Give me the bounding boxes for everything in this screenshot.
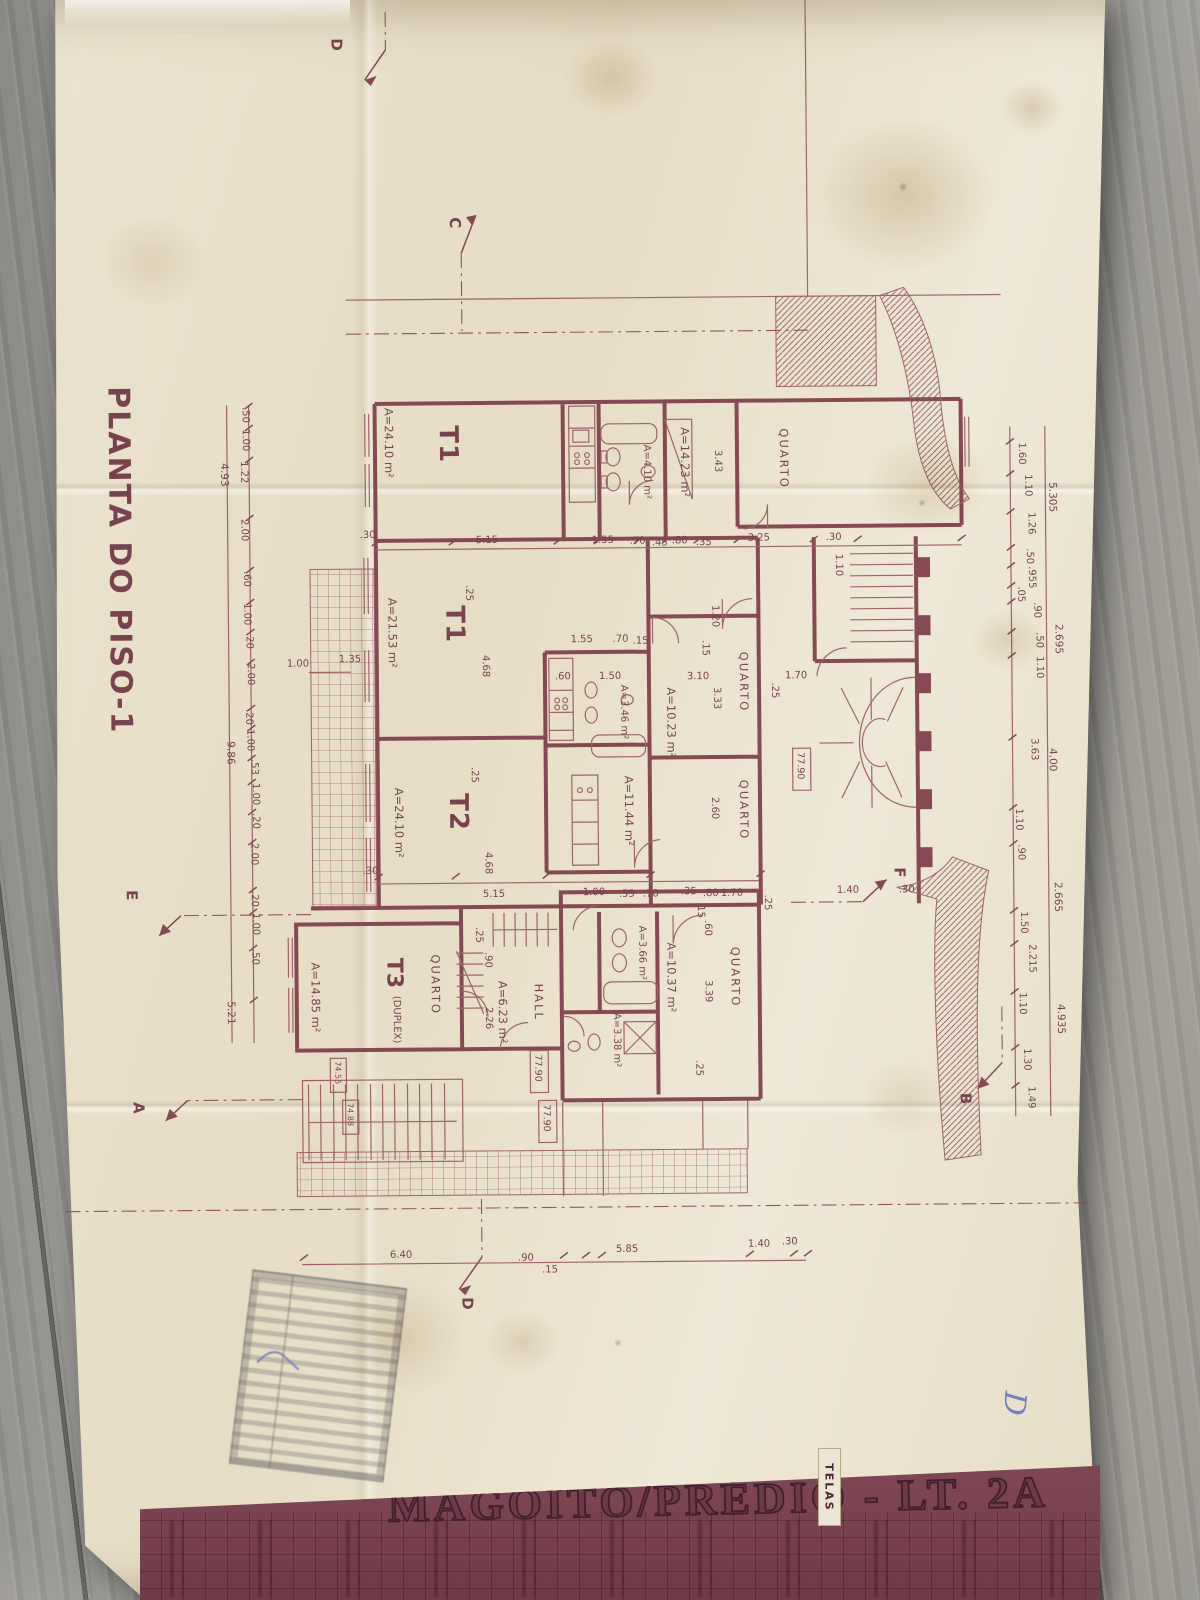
section-letter-b: B bbox=[957, 1093, 975, 1105]
svg-text:1.10: 1.10 bbox=[1013, 808, 1024, 830]
room-hall: HALL bbox=[532, 983, 546, 1020]
unit-area-t1-top: A=24.10 m² bbox=[382, 408, 397, 478]
unit-label-t1-mid: T1 bbox=[439, 605, 469, 643]
svg-text:.25: .25 bbox=[463, 585, 474, 601]
handwritten-d-mark: D bbox=[996, 1390, 1033, 1417]
svg-text:1.35: 1.35 bbox=[339, 654, 361, 665]
bottom-grid-hatch bbox=[297, 1149, 747, 1197]
room-quarto-3: QUARTO bbox=[737, 780, 752, 841]
area-bath-mid: A=3.46 m² bbox=[618, 685, 629, 740]
svg-text:1.70: 1.70 bbox=[721, 888, 743, 899]
bathtub-3 bbox=[604, 982, 658, 1004]
room-quarto-1: QUARTO bbox=[777, 428, 792, 489]
svg-text:.53: .53 bbox=[249, 759, 260, 775]
svg-text:.30: .30 bbox=[360, 530, 376, 541]
svg-text:1.55: 1.55 bbox=[571, 634, 593, 645]
svg-text:.35: .35 bbox=[681, 886, 697, 897]
svg-text:1.20: 1.20 bbox=[709, 605, 720, 627]
svg-text:2.60: 2.60 bbox=[709, 797, 720, 819]
svg-text:1.00: 1.00 bbox=[250, 913, 261, 935]
door-arcs bbox=[457, 479, 850, 1049]
area-bed-t3: A=10.37 m² bbox=[664, 942, 679, 1012]
svg-text:.60: .60 bbox=[555, 671, 571, 682]
kitchen-counter bbox=[569, 406, 596, 502]
svg-text:2.00: 2.00 bbox=[248, 843, 259, 865]
section-letter-c: C bbox=[446, 217, 464, 228]
section-letter-f: F bbox=[891, 867, 909, 877]
kitchen-sink bbox=[573, 430, 589, 442]
svg-text:1.50: 1.50 bbox=[599, 671, 621, 682]
svg-text:1.50: 1.50 bbox=[1018, 911, 1029, 933]
t3-dimension-row: .25 .90 2.26 bbox=[473, 927, 494, 1029]
washbasin-2 bbox=[568, 1041, 580, 1051]
survey-lines bbox=[343, 0, 1001, 300]
svg-text:1.00: 1.00 bbox=[240, 429, 251, 451]
svg-text:3.33: 3.33 bbox=[711, 687, 722, 709]
bathtub bbox=[601, 423, 657, 443]
svg-text:2.665: 2.665 bbox=[1052, 882, 1064, 912]
svg-text:4.00: 4.00 bbox=[1047, 748, 1059, 771]
svg-text:4.68: 4.68 bbox=[482, 852, 493, 874]
unit-label-t1-top: T1 bbox=[433, 425, 463, 463]
svg-text:1.00: 1.00 bbox=[250, 783, 261, 805]
svg-text:3.25: 3.25 bbox=[748, 533, 770, 544]
svg-text:2.215: 2.215 bbox=[1026, 944, 1037, 973]
svg-text:.55: .55 bbox=[619, 889, 635, 900]
svg-text:.25: .25 bbox=[762, 894, 773, 910]
area-bed-mid: A=10.23 m² bbox=[664, 687, 679, 757]
svg-text:1.00: 1.00 bbox=[583, 887, 605, 898]
bidet bbox=[612, 954, 626, 972]
unit-area-t1-mid: A=21.53 m² bbox=[385, 598, 400, 668]
svg-text:6.40: 6.40 bbox=[390, 1250, 412, 1261]
svg-text:.15: .15 bbox=[633, 636, 649, 647]
svg-text:.30: .30 bbox=[826, 532, 842, 543]
svg-text:1.40: 1.40 bbox=[748, 1239, 770, 1250]
bottom-dimension-chain: 6.40 .90 .15 5.85 1.40 .30 bbox=[390, 1236, 798, 1277]
t2-dimension-row: .30 .25 4.68 5.15 bbox=[362, 767, 505, 901]
svg-text:1.10: 1.10 bbox=[1022, 474, 1033, 496]
bidet bbox=[585, 707, 597, 723]
curved-stair-inner bbox=[862, 719, 886, 767]
svg-text:2.00: 2.00 bbox=[239, 519, 250, 541]
blue-pen-squiggle bbox=[250, 1332, 314, 1379]
curved-stair-outer bbox=[859, 677, 916, 807]
svg-text:.20: .20 bbox=[249, 891, 260, 907]
svg-text:.90: .90 bbox=[1031, 602, 1042, 618]
svg-text:.50: .50 bbox=[1034, 632, 1045, 648]
svg-text:2.26: 2.26 bbox=[483, 1007, 494, 1029]
level-7790-b: 77.90 bbox=[541, 1104, 552, 1131]
svg-text:1.26: 1.26 bbox=[1026, 512, 1037, 534]
svg-text:3.63: 3.63 bbox=[1028, 738, 1039, 760]
svg-text:3.39: 3.39 bbox=[703, 980, 714, 1002]
svg-text:1.60: 1.60 bbox=[1016, 442, 1027, 464]
svg-text:.80: .80 bbox=[703, 888, 719, 899]
photo-of-floor-plan: PLANTA DO PISO-1 T1 A=24.10 m² T1 A=21.5… bbox=[0, 0, 1200, 1600]
svg-text:1.10: 1.10 bbox=[1017, 992, 1028, 1014]
svg-text:1.00: 1.00 bbox=[241, 603, 252, 625]
svg-text:.30: .30 bbox=[363, 866, 379, 877]
svg-text:.60: .60 bbox=[241, 571, 252, 587]
approval-stamp bbox=[229, 1269, 408, 1483]
level-7455: 74.55 bbox=[333, 1061, 342, 1084]
room-quarto-4: QUARTO bbox=[428, 954, 443, 1015]
floor-plan-drawing: PLANTA DO PISO-1 T1 A=24.10 m² T1 A=21.5… bbox=[0, 0, 1200, 1600]
svg-text:2.695: 2.695 bbox=[1052, 624, 1064, 654]
svg-text:.25: .25 bbox=[473, 927, 484, 943]
svg-text:.25: .25 bbox=[693, 1060, 704, 1076]
toilet bbox=[606, 448, 620, 466]
bidet bbox=[606, 473, 620, 491]
svg-text:1.10: 1.10 bbox=[1034, 656, 1045, 678]
section-letter-e: E bbox=[123, 890, 141, 900]
svg-text:.90: .90 bbox=[482, 952, 493, 968]
svg-text:.90: .90 bbox=[1015, 844, 1026, 860]
svg-text:1.22: 1.22 bbox=[238, 461, 249, 483]
section-letter-a: A bbox=[130, 1102, 148, 1114]
unit-label-t3: T3 bbox=[381, 958, 406, 989]
area-wc-t3: A=3.38 m² bbox=[611, 1013, 622, 1068]
svg-text:.60: .60 bbox=[702, 920, 713, 936]
section-letter-d-top: D bbox=[327, 38, 345, 51]
svg-text:5.15: 5.15 bbox=[483, 889, 505, 900]
svg-text:.20: .20 bbox=[250, 813, 261, 829]
svg-text:.05: .05 bbox=[1015, 586, 1026, 602]
svg-text:1.00: 1.00 bbox=[287, 659, 309, 670]
level-7790-stair: 77.90 bbox=[795, 752, 806, 779]
svg-text:4.935: 4.935 bbox=[1055, 1004, 1067, 1034]
unit-area-t2: A=24.10 m² bbox=[392, 788, 407, 858]
toilet bbox=[585, 682, 597, 698]
svg-text:.70: .70 bbox=[643, 888, 659, 899]
svg-text:.35: .35 bbox=[696, 537, 712, 548]
drawing-title: PLANTA DO PISO-1 bbox=[100, 386, 138, 735]
svg-text:.80: .80 bbox=[672, 535, 688, 546]
room-quarto-5: QUARTO bbox=[728, 947, 743, 1008]
unit-label-t3-duplex: (DUPLEX) bbox=[391, 996, 402, 1044]
svg-text:.50: .50 bbox=[240, 407, 251, 423]
svg-text:.70: .70 bbox=[613, 634, 629, 645]
svg-text:5.15: 5.15 bbox=[476, 535, 498, 546]
unit-area-t3: A=14.85 m² bbox=[308, 962, 323, 1032]
svg-text:5.21: 5.21 bbox=[225, 1001, 237, 1024]
svg-text:1.10: 1.10 bbox=[833, 554, 844, 576]
svg-text:1.70: 1.70 bbox=[785, 670, 807, 681]
svg-text:3.10: 3.10 bbox=[687, 671, 709, 682]
area-bed-top: A=14.23 m² bbox=[678, 427, 693, 497]
svg-text:4.93: 4.93 bbox=[218, 463, 230, 486]
area-bath-top: A=4.10 m² bbox=[641, 445, 652, 500]
area-hall-t3: A=6.23 m² bbox=[496, 981, 511, 1044]
svg-text:.25: .25 bbox=[469, 767, 480, 783]
svg-text:1.00: 1.00 bbox=[244, 729, 255, 751]
svg-text:1.49: 1.49 bbox=[1026, 1086, 1037, 1108]
svg-text:5.305: 5.305 bbox=[1046, 482, 1058, 512]
svg-text:.25: .25 bbox=[769, 682, 780, 698]
svg-text:.90: .90 bbox=[518, 1253, 534, 1264]
svg-text:.20: .20 bbox=[243, 709, 254, 725]
svg-text:.50: .50 bbox=[1024, 548, 1035, 564]
svg-text:4.68: 4.68 bbox=[480, 655, 491, 677]
svg-text:.15: .15 bbox=[695, 902, 706, 918]
balcony-grid-hatch bbox=[310, 569, 377, 907]
title-block-small-text-columns bbox=[170, 1520, 1080, 1597]
right-dimension-chain: 1.60 1.10 1.26 .50 .955 .05 .90 .50 1.10… bbox=[1010, 442, 1069, 1109]
svg-text:.30: .30 bbox=[782, 1236, 798, 1247]
telas-label-chip: TELAS bbox=[818, 1448, 841, 1526]
rubble-wall-lower-right bbox=[897, 857, 992, 1161]
area-bath-t3: A=3.66 m² bbox=[636, 926, 647, 981]
room-quarto-2: QUARTO bbox=[737, 652, 752, 713]
svg-text:.20: .20 bbox=[244, 633, 255, 649]
svg-text:9.86: 9.86 bbox=[224, 741, 236, 765]
svg-text:2.00: 2.00 bbox=[245, 663, 256, 685]
section-letter-d-bottom: D bbox=[458, 1297, 476, 1310]
kitchen-counter-3 bbox=[572, 775, 599, 865]
toilet bbox=[612, 929, 626, 947]
svg-text:1.30: 1.30 bbox=[1021, 1048, 1032, 1070]
svg-text:.30: .30 bbox=[899, 884, 915, 895]
toilet-2 bbox=[588, 1034, 600, 1050]
svg-text:.15: .15 bbox=[542, 1264, 558, 1275]
svg-text:.955: .955 bbox=[1026, 566, 1037, 588]
level-7488: 74.88 bbox=[346, 1103, 355, 1126]
mid-dimension-rows: .25 4.68 1.55 .70 .15 .60 1.50 3.10 3.33… bbox=[463, 582, 807, 711]
svg-text:1.55: 1.55 bbox=[592, 535, 614, 546]
area-bed-t2: A=11.44 m² bbox=[622, 776, 637, 846]
svg-text:3.43: 3.43 bbox=[712, 450, 723, 472]
svg-text:.50: .50 bbox=[249, 949, 260, 965]
svg-text:.45: .45 bbox=[652, 537, 668, 548]
svg-text:1.40: 1.40 bbox=[837, 885, 859, 896]
level-7790-a: 77.90 bbox=[532, 1055, 543, 1082]
hatched-wall-top bbox=[776, 296, 877, 387]
svg-text:.70: .70 bbox=[630, 536, 646, 547]
unit-label-t2: T2 bbox=[443, 793, 473, 831]
svg-text:5.85: 5.85 bbox=[616, 1244, 638, 1255]
svg-text:.15: .15 bbox=[700, 640, 711, 656]
